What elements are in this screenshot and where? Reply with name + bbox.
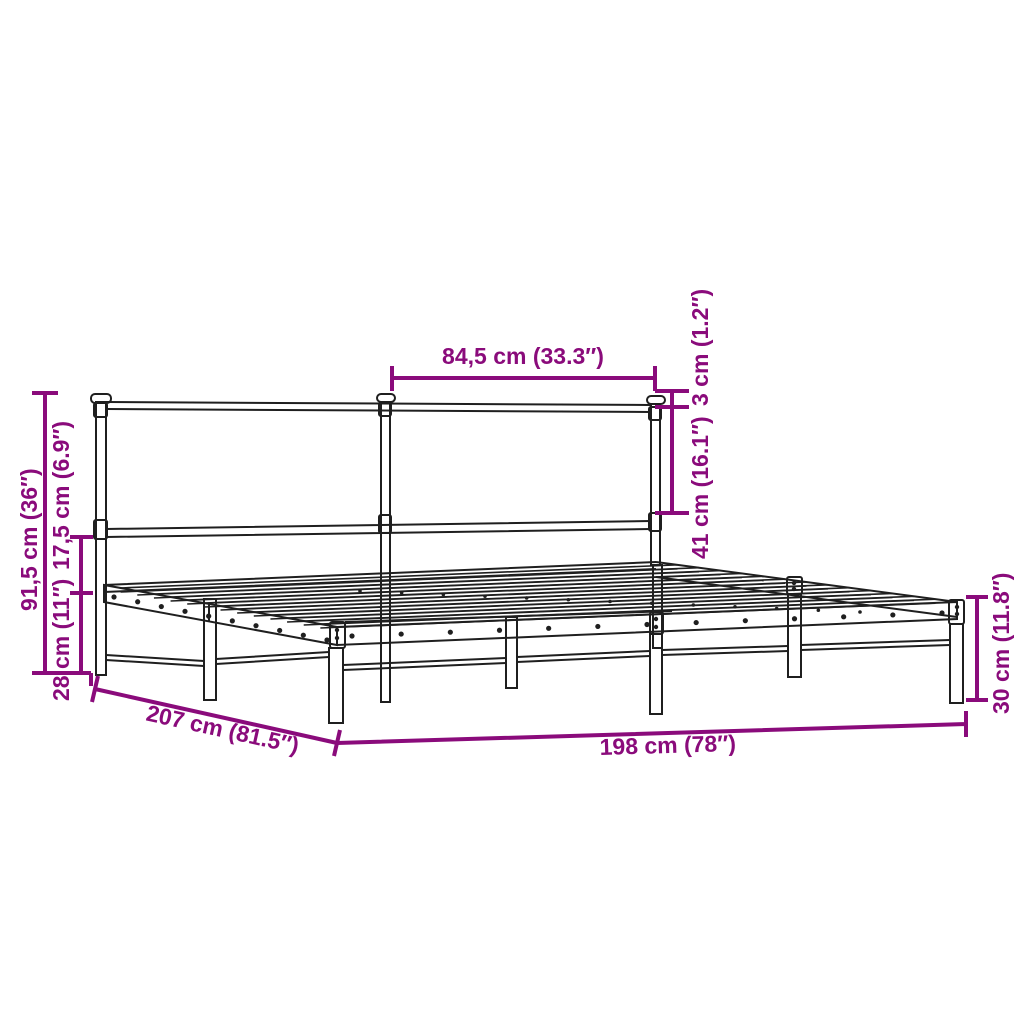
dimension-under-bed-clearance: 28 cm (11″) <box>48 579 81 701</box>
side-stretcher <box>106 652 329 666</box>
headboard-far-finial <box>647 396 665 404</box>
stretcher-bars <box>106 640 950 670</box>
foot-height-label: 30 cm (11.8″) <box>988 573 1014 714</box>
panel-height-label: 41 cm (16.1″) <box>687 416 713 559</box>
front-right-leg <box>950 624 963 703</box>
headboard <box>91 394 665 702</box>
headboard-far-post <box>651 404 660 565</box>
front-inner-left-leg <box>506 617 517 688</box>
headboard-width-label: 84,5 cm (33.3″) <box>442 343 604 369</box>
front-center-leg <box>650 634 662 714</box>
frame-width-label: 198 cm (78″) <box>599 730 736 760</box>
dimension-rail-to-base-gap: 17,5 cm (6.9″) <box>48 421 93 593</box>
dimension-headboard-section-width: 84,5 cm (33.3″) <box>392 343 655 391</box>
front-left-leg <box>329 648 343 723</box>
clearance-label: 28 cm (11″) <box>48 579 74 701</box>
headboard-width-dimension-line <box>392 366 655 391</box>
overall-height-label: 91,5 cm (36″) <box>16 468 42 611</box>
foot-height-dimension-line <box>966 597 988 700</box>
dimension-foot-end-height: 30 cm (11.8″) <box>966 573 1014 714</box>
slat-platform <box>104 562 957 645</box>
headboard-mid-finial <box>377 394 395 402</box>
dimension-diagram-canvas: 84,5 cm (33.3″) 3 cm (1.2″) 41 cm (16.1″… <box>0 0 1024 1024</box>
dimension-finial-height: 3 cm (1.2″) <box>655 289 713 407</box>
dimension-headboard-panel-height: 41 cm (16.1″) <box>655 407 713 559</box>
front-stretcher <box>343 640 950 670</box>
finial-height-label: 3 cm (1.2″) <box>687 289 713 406</box>
rear-mid-leg <box>788 594 801 677</box>
dimension-frame-width: 198 cm (78″) <box>337 711 966 760</box>
bed-frame-drawing <box>91 394 964 723</box>
frame-length-label: 207 cm (81.5″) <box>144 700 301 759</box>
headboard-mid-post <box>381 402 390 702</box>
bed-frame-diagram: 84,5 cm (33.3″) 3 cm (1.2″) 41 cm (16.1″… <box>0 0 1024 1024</box>
rail-gap-label: 17,5 cm (6.9″) <box>48 421 74 570</box>
